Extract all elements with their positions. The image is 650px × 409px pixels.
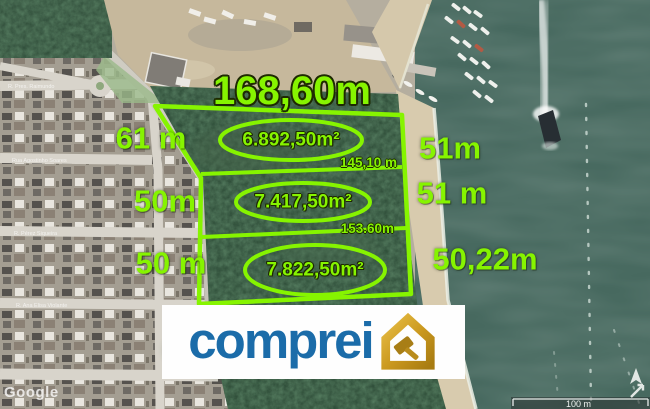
- left-length-label-3: 50 m: [136, 248, 207, 279]
- land-listing-map: R. Pres. Raimundo Rua Agostinho Soares R…: [0, 0, 650, 409]
- street-label: R. Ana Elisa Violante: [16, 303, 67, 309]
- top-length-label: 168,60m: [213, 71, 371, 111]
- comprei-logo-text: comprei: [188, 315, 372, 366]
- street-label: R. Pérez Siqueira: [14, 231, 58, 237]
- scale-bar: 100 m: [511, 397, 650, 409]
- scale-label: 100 m: [566, 399, 591, 409]
- house-gavel-icon: [377, 311, 439, 373]
- left-length-label-1: 61 m: [116, 123, 187, 154]
- parcel-area-label-3: 7.822,50m²: [266, 261, 363, 280]
- comprei-logo-band: comprei: [162, 305, 465, 379]
- inner-length-label-2: 153.60m: [341, 222, 394, 236]
- google-watermark: Google: [4, 384, 59, 401]
- inner-length-label-1: 145,10 m: [340, 156, 397, 170]
- right-length-label-1: 51m: [419, 133, 481, 164]
- vegetation-top-left: [0, 0, 112, 58]
- right-length-label-3: 50,22m: [432, 244, 537, 275]
- right-length-label-2: 51 m: [417, 178, 488, 209]
- boat-wake: [540, 0, 548, 122]
- left-length-label-2: 50m: [134, 186, 196, 217]
- street-label: R. Pres. Raimundo: [8, 84, 54, 90]
- parcel-area-label-1: 6.892,50m²: [242, 131, 339, 150]
- parcel-area-label-2: 7.417,50m²: [254, 193, 351, 212]
- street-label: Rua Agostinho Soares: [12, 158, 67, 164]
